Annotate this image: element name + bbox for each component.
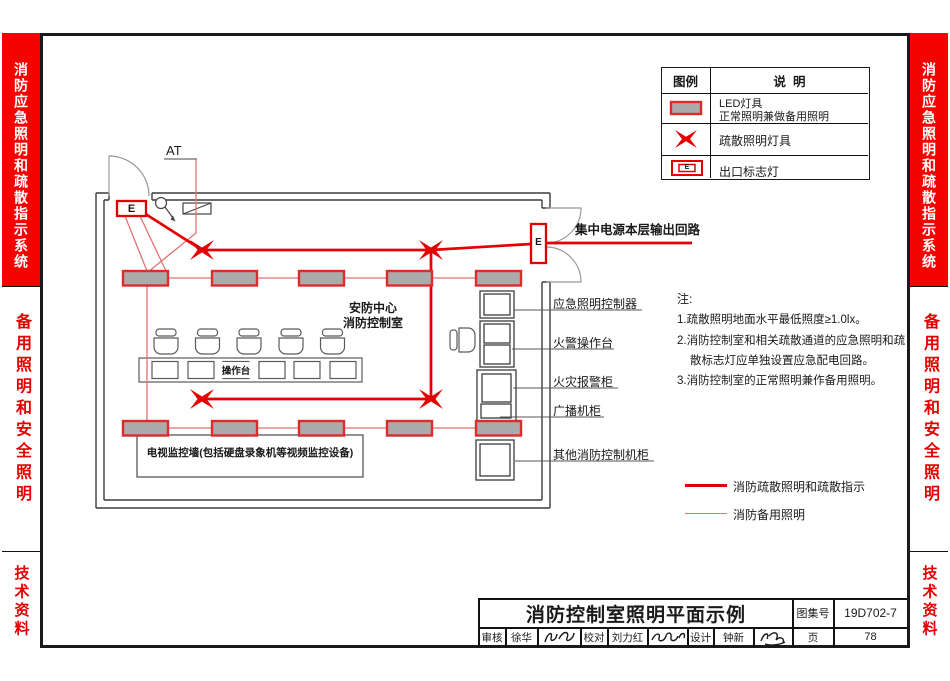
evac-line-label: 消防疏散照明和疏散指示	[733, 478, 865, 495]
atlas-page: 消防应急照明和疏散指示系统 备用照明和安全照明 技术资料 消防应急照明和疏散指示…	[0, 0, 950, 681]
cabinet-label-broadcast: 广播机柜	[553, 402, 601, 419]
note-2-line1: 2.消防控制室和相关疏散通道的应急照明和疏	[677, 332, 905, 348]
legend-evac-symbol	[670, 128, 702, 150]
note-2-line2: 散标志灯应单独设置应急配电回路。	[690, 352, 874, 368]
backup-line-label: 消防备用照明	[733, 506, 805, 523]
cabinet-label-emergency-controller: 应急照明控制器	[553, 295, 637, 312]
notes-title: 注:	[677, 290, 692, 307]
designer-signature	[755, 627, 792, 647]
entry-door	[109, 156, 149, 196]
cabinet-label-fire-alarm: 火灾报警柜	[553, 373, 613, 390]
legend-divider-h3	[662, 155, 868, 157]
designer-name: 钟新	[714, 628, 753, 646]
proofreader-label: 校对	[581, 628, 607, 646]
reviewer-label: 审核	[479, 628, 505, 646]
page-label: 页	[793, 628, 833, 646]
exit-sign-right-letter: E	[531, 236, 546, 249]
proofreader-name: 刘力红	[608, 628, 647, 646]
legend-led-desc-line2: 正常照明兼做备用照明	[719, 108, 829, 124]
distribution-box-symbol	[183, 203, 211, 214]
legend-led-symbol	[668, 100, 704, 116]
note-1: 1.疏散照明地面水平最低照度≥1.0lx。	[677, 311, 867, 327]
legend-header-desc: 说 明	[711, 68, 868, 92]
reviewer-name: 徐华	[506, 628, 537, 646]
at-panel-label: AT	[166, 143, 182, 158]
output-circuit-label: 集中电源本层输出回路	[575, 219, 700, 238]
room-name-line1: 安防中心	[340, 300, 406, 314]
backup-line-sample	[685, 513, 727, 514]
evac-line-sample	[685, 484, 727, 487]
led-luminaires	[123, 271, 521, 436]
equipment-cabinets	[476, 291, 516, 480]
reviewer-signature	[539, 627, 580, 647]
backup-lighting-circuit	[125, 158, 500, 428]
proofreader-signature	[648, 627, 687, 647]
console-label: 操作台	[220, 362, 252, 378]
note-3: 3.消防控制室的正常照明兼作备用照明。	[677, 372, 882, 388]
operator-chairs	[154, 328, 475, 354]
legend-divider-h1	[662, 93, 868, 95]
cabinet-label-other-fire-control: 其他消防控制机柜	[553, 446, 649, 463]
atlas-number-value: 19D702-7	[834, 599, 907, 627]
designer-label: 设计	[688, 628, 713, 646]
legend-table: 图例 说 明 LED灯具 正常照明兼做备用照明 疏散照明灯具 E 出口标志灯	[661, 67, 870, 180]
legend-exit-letter: E	[679, 164, 695, 172]
drawing-title: 消防控制室照明平面示例	[480, 599, 792, 627]
exit-sign-left-letter: E	[117, 202, 146, 215]
atlas-number-label: 图集号	[793, 599, 833, 627]
page-number: 78	[834, 628, 907, 646]
switch-symbol	[156, 198, 176, 222]
room-name-line2: 消防控制室	[340, 315, 406, 329]
cabinet-label-fire-console: 火警操作台	[553, 334, 613, 351]
legend-header-symbol: 图例	[662, 68, 709, 92]
legend-exit-desc: 出口标志灯	[719, 163, 779, 180]
tv-wall-label: 电视监控墙(包括硬盘录象机等视频监控设备)	[138, 442, 362, 462]
legend-evac-desc: 疏散照明灯具	[719, 132, 791, 149]
